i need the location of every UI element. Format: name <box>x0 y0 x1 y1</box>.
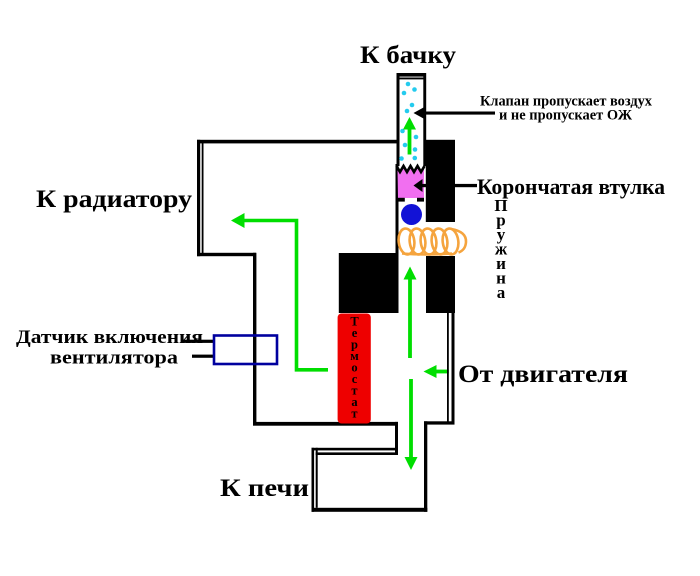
svg-text:т: т <box>351 406 357 420</box>
svg-text:К радиатору: К радиатору <box>36 186 193 213</box>
svg-text:а: а <box>497 283 506 302</box>
svg-text:Датчик включения: Датчик включения <box>16 327 203 348</box>
svg-text:К бачку: К бачку <box>360 42 457 69</box>
svg-text:вентилятора: вентилятора <box>50 348 179 369</box>
svg-text:К печи: К печи <box>220 475 309 502</box>
svg-text:и не пропускает ОЖ: и не пропускает ОЖ <box>499 108 633 124</box>
svg-text:От двигателя: От двигателя <box>458 361 628 388</box>
